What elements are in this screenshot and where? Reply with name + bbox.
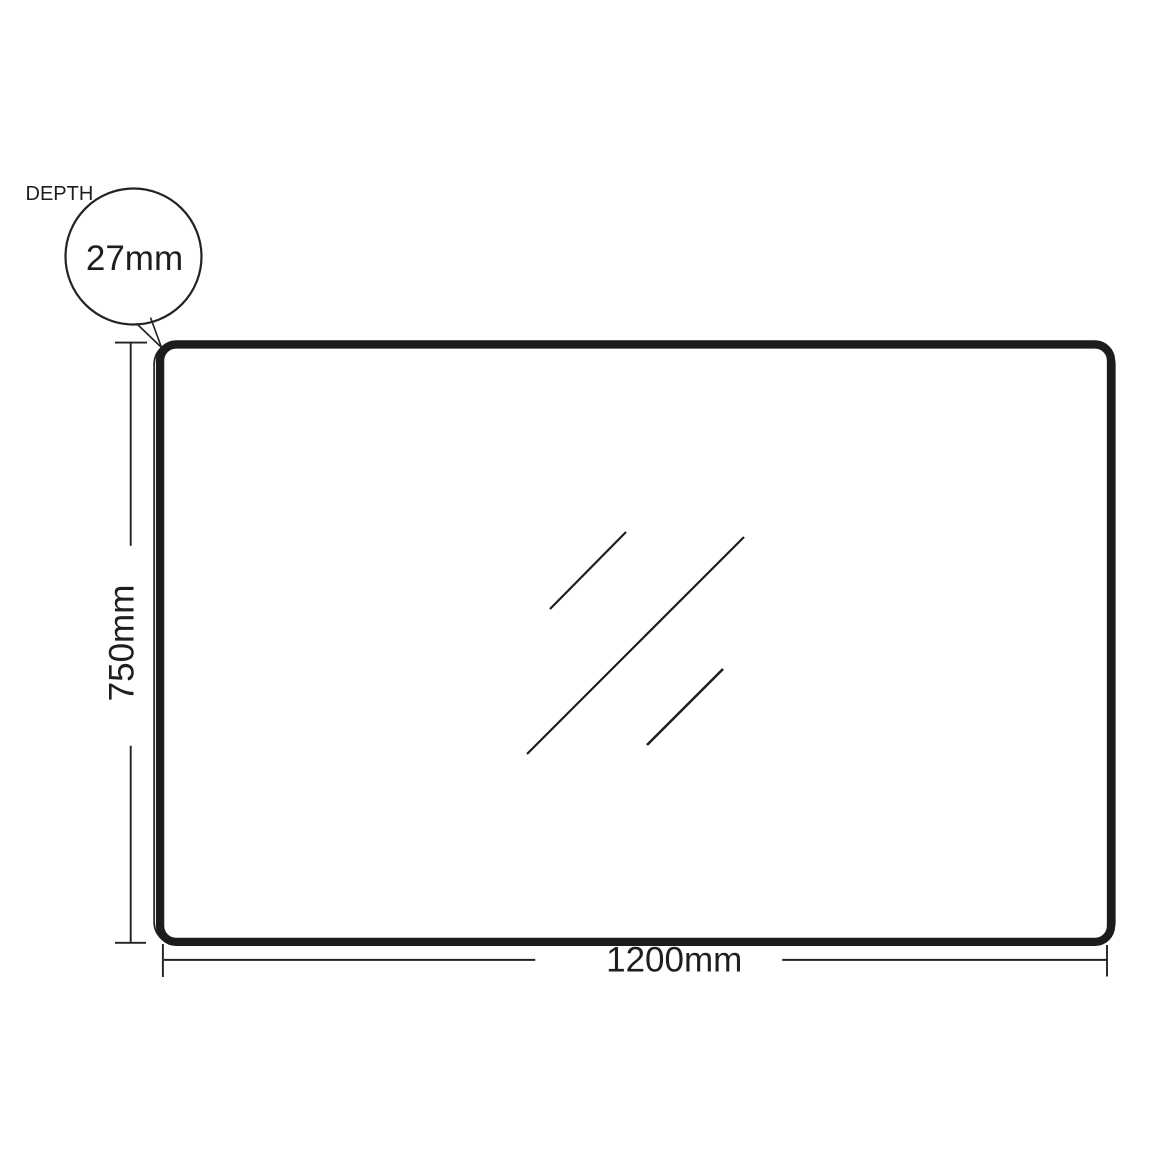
svg-text:DEPTH: DEPTH [26, 183, 94, 205]
svg-text:27mm: 27mm [86, 239, 183, 278]
svg-text:750mm: 750mm [103, 585, 142, 702]
svg-text:1200mm: 1200mm [606, 940, 742, 979]
